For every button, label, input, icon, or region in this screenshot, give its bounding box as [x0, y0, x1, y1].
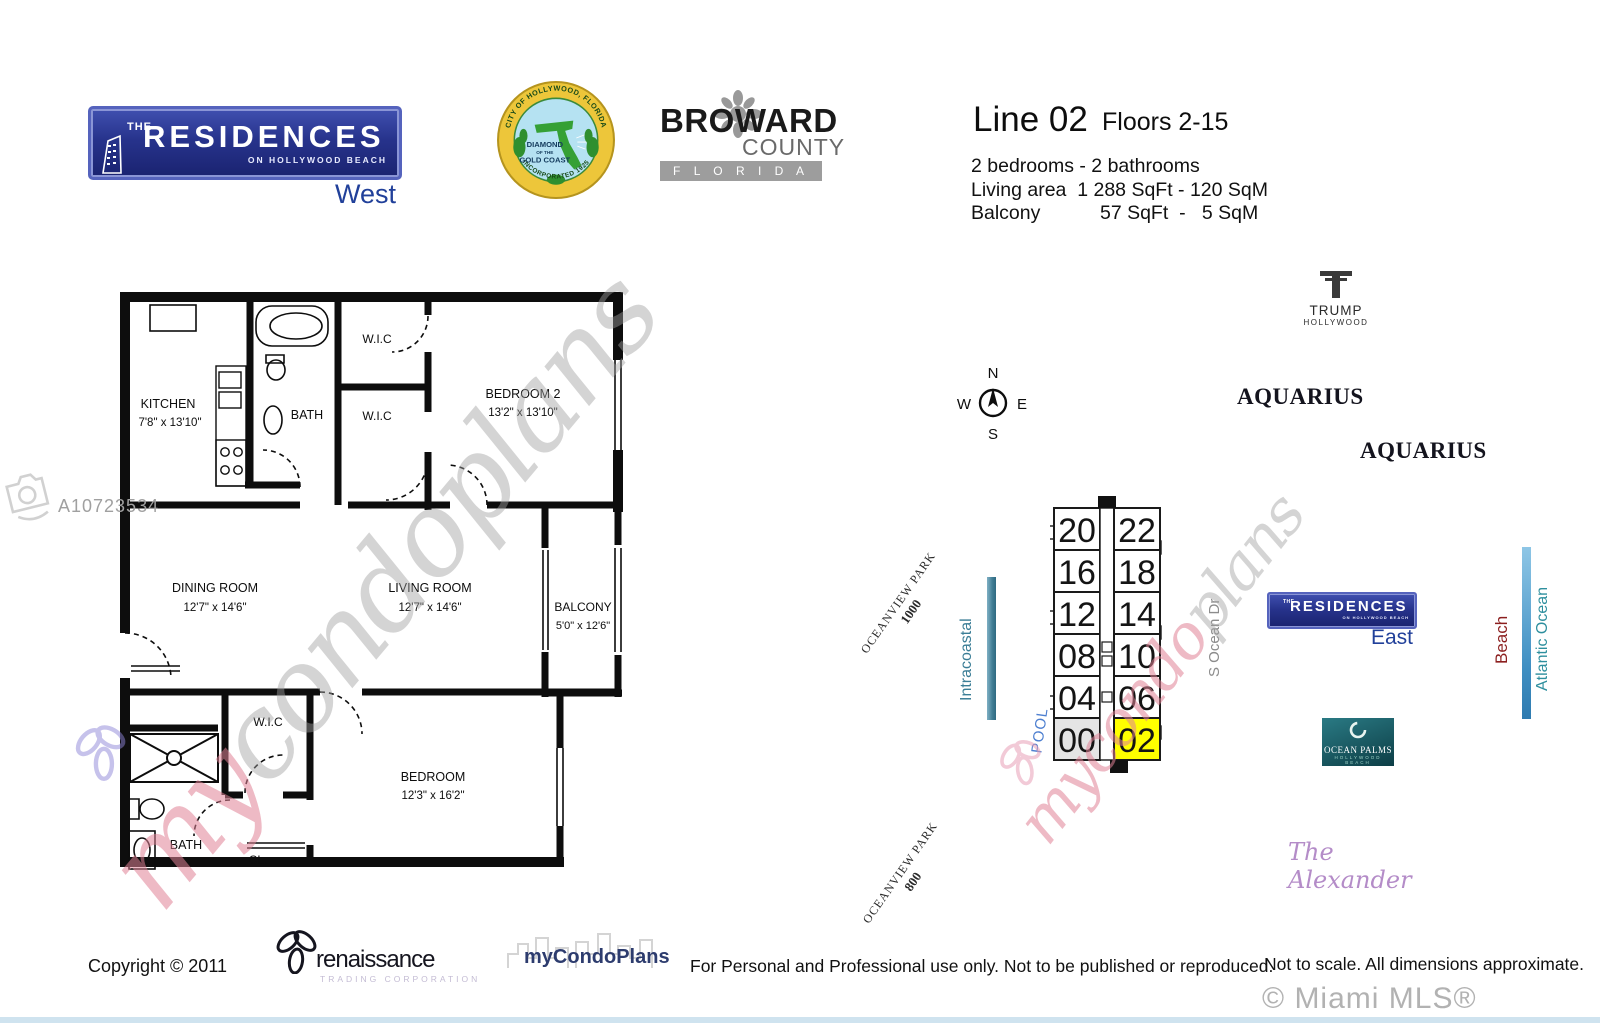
east-label: East: [1267, 626, 1413, 650]
trump-t-icon: [1318, 270, 1354, 298]
aquarius-label-2: AQUARIUS: [1360, 438, 1486, 464]
unit-18: 18: [1118, 554, 1156, 592]
oceanview-park-800: OCEANVIEW PARK 800: [859, 818, 956, 937]
room-living: LIVING ROOM: [388, 581, 471, 595]
floors-label: Floors 2-15: [1102, 108, 1228, 137]
residences-east-logo: THE RESIDENCES ON HOLLYWOOD BEACH: [1267, 592, 1417, 629]
renaissance-trefoil-icon: [274, 928, 318, 974]
trump-sub: HOLLYWOOD: [1295, 318, 1377, 327]
residences-west-logo: THE RESIDENCES ON HOLLYWOOD BEACH: [88, 106, 402, 180]
room-bedroom2: BEDROOM 2: [485, 387, 560, 401]
unit-10: 10: [1118, 638, 1156, 676]
room-bath-upper: BATH: [291, 408, 323, 422]
room-bedroom: BEDROOM: [401, 770, 466, 784]
unit-14: 14: [1118, 596, 1156, 634]
seal-center-1: DIAMOND: [527, 140, 564, 149]
unit-12: 12: [1058, 596, 1096, 634]
broward-county: COUNTY: [742, 134, 845, 161]
beach-label: Beach: [1492, 608, 1512, 664]
floorplan-sheet: THE RESIDENCES ON HOLLYWOOD BEACH West C…: [0, 0, 1600, 1023]
floor-plan: KITCHEN 7'8" x 13'10" BATH W.I.C W.I.C B…: [100, 272, 660, 892]
compass-icon: N W E S: [955, 362, 1031, 442]
building-icon: [99, 133, 125, 175]
oceanview-park-1000: OCEANVIEW PARK 1000: [857, 548, 954, 667]
ocean-palms-logo: OCEAN PALMS HOLLYWOOD BEACH: [1322, 718, 1394, 766]
room-closet: CL.: [249, 853, 268, 867]
intracoastal-bar: [987, 577, 996, 720]
unit-08: 08: [1058, 638, 1096, 676]
compass-e: E: [1017, 396, 1027, 413]
compass-n: N: [988, 365, 999, 382]
room-dining: DINING ROOM: [172, 581, 258, 595]
spec-bed-bath: 2 bedrooms - 2 bathrooms: [971, 155, 1200, 179]
trump-name: TRUMP: [1295, 303, 1377, 318]
room-bedroom2-dims: 13'2" x 13'10": [488, 407, 557, 419]
unit-22: 22: [1118, 512, 1156, 550]
broward-florida-bar: F L O R I D A: [660, 161, 822, 181]
residences-east-name: RESIDENCES: [1290, 598, 1408, 615]
room-dining-dims: 12'7" x 14'6": [183, 602, 246, 614]
bottom-strip: [0, 1017, 1600, 1023]
intracoastal-label: Intracoastal: [958, 596, 976, 701]
spec-balcony: Balcony 57 SqFt - 5 SqM: [971, 202, 1258, 226]
aquarius-label-1: AQUARIUS: [1237, 384, 1363, 410]
copyright-label: Copyright © 2011: [88, 956, 227, 977]
atlantic-ocean-label: Atlantic Ocean: [1534, 576, 1552, 691]
renaissance-name: renaissance: [316, 946, 434, 974]
room-bedroom-dims: 12'3" x 16'2": [401, 790, 464, 802]
kitchen-fixtures: [216, 366, 246, 486]
west-label: West: [88, 179, 396, 210]
building-stack: 20 22 16 18 12 14 08 10 04 06 00 02: [1050, 496, 1162, 776]
seal-center-3: GOLD COAST: [519, 155, 570, 164]
compass-w: W: [957, 396, 972, 413]
hollywood-seal: CITY OF HOLLYWOOD, FLORIDA INCORPORATED …: [496, 80, 616, 200]
beach-bar: [1522, 547, 1531, 719]
room-wic-3: W.I.C: [253, 715, 283, 729]
ocean-palms-sub: HOLLYWOOD BEACH: [1322, 755, 1394, 765]
line-title: Line 02: [973, 100, 1088, 140]
unit-00: 00: [1058, 722, 1096, 760]
room-wic-1: W.I.C: [362, 332, 392, 346]
unit-06: 06: [1118, 680, 1156, 718]
ocean-palms-name: OCEAN PALMS: [1322, 745, 1394, 755]
legal-text: For Personal and Professional use only. …: [690, 956, 1273, 977]
room-kitchen: KITCHEN: [141, 397, 196, 411]
unit-20: 20: [1058, 512, 1096, 550]
mycondoplans-label: myCondoPlans: [524, 946, 670, 969]
watermark-mls-number: A10723534: [58, 496, 159, 517]
renaissance-sub: TRADING CORPORATION: [320, 974, 480, 984]
unit-16: 16: [1058, 554, 1096, 592]
alexander-label: The Alexander: [1288, 838, 1448, 894]
room-wic-2: W.I.C: [362, 409, 392, 423]
unit-04: 04: [1058, 680, 1096, 718]
room-living-dims: 12'7" x 14'6": [398, 602, 461, 614]
residences-logo-tagline: ON HOLLYWOOD BEACH: [248, 155, 387, 165]
room-kitchen-dims: 7'8" x 13'10": [138, 417, 201, 429]
trump-hollywood-logo: TRUMP HOLLYWOOD: [1295, 270, 1377, 327]
watermark-photo-icon: [0, 465, 58, 531]
room-balcony: BALCONY: [554, 600, 611, 614]
room-bath-lower: BATH: [170, 838, 202, 852]
room-balcony-dims: 5'0" x 12'6": [556, 620, 610, 632]
unit-02: 02: [1118, 722, 1156, 760]
s-ocean-dr-label: S Ocean Dr: [1206, 592, 1223, 677]
watermark-trefoil-left-icon: [71, 718, 133, 788]
disclaimer-text: Not to scale. All dimensions approximate…: [1264, 954, 1584, 975]
ocean-palms-ring-icon: [1347, 720, 1369, 740]
spec-living-area: Living area 1 288 SqFt - 120 SqM: [971, 179, 1268, 203]
compass-s: S: [988, 426, 998, 442]
residences-logo-name: RESIDENCES: [143, 119, 385, 155]
residences-east-tagline: ON HOLLYWOOD BEACH: [1342, 615, 1409, 620]
